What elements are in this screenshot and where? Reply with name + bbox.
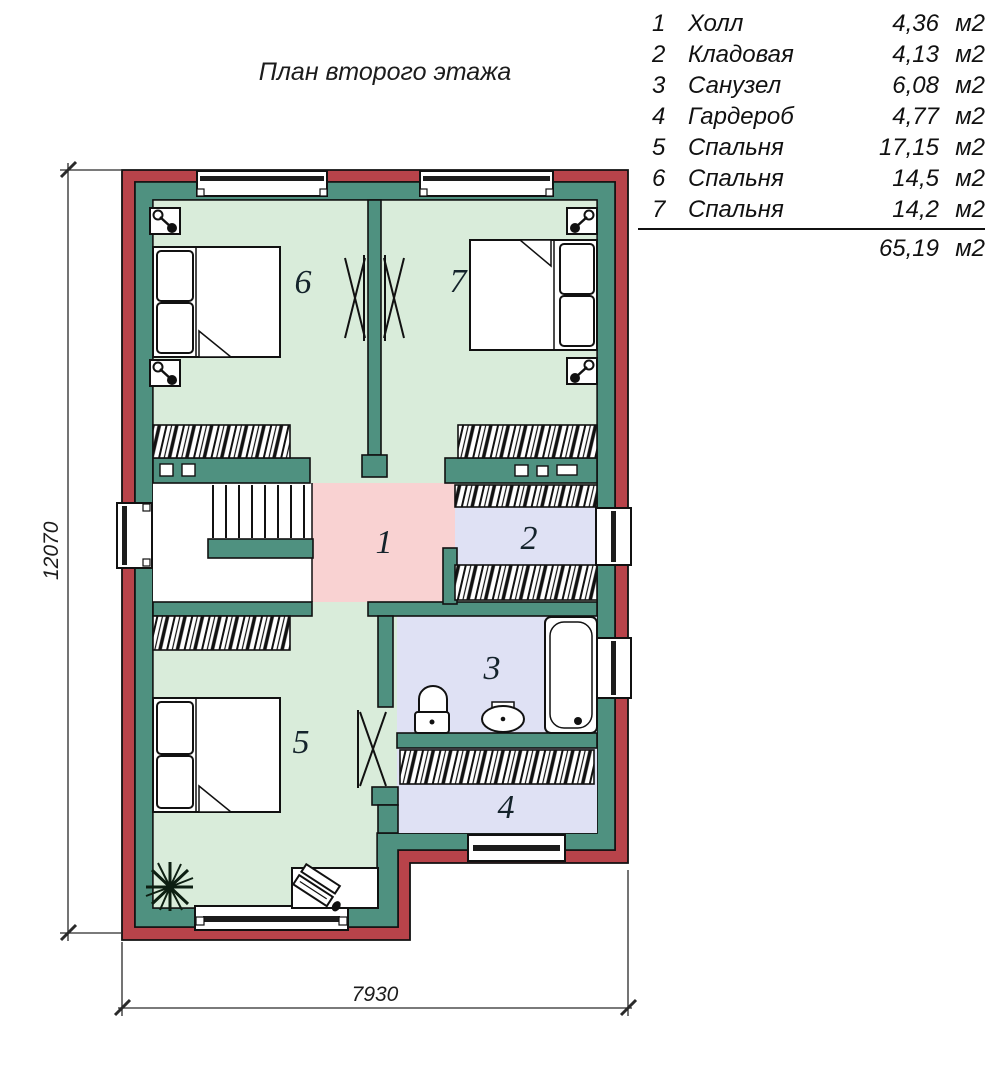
bed-bedroom-6 xyxy=(153,247,280,357)
bathroom-left-wall xyxy=(378,616,393,707)
legend-room-number: 1 xyxy=(652,10,688,38)
window-right-bathroom xyxy=(596,638,631,698)
window-right-storage xyxy=(596,508,631,565)
legend-room-number: 4 xyxy=(652,103,688,131)
plan-title: План второго этажа xyxy=(259,58,512,86)
legend-area-unit: м2 xyxy=(939,10,985,38)
desk-icon xyxy=(292,864,378,913)
stair-stringer xyxy=(208,539,313,558)
legend-room-name: Холл xyxy=(688,10,855,38)
legend-area-unit: м2 xyxy=(939,196,985,224)
legend-room-name: Гардероб xyxy=(688,103,855,131)
stairs-top-wall xyxy=(153,458,310,483)
sconce-icon xyxy=(567,358,597,384)
legend-room-area: 14,2 xyxy=(855,196,939,224)
window-top-left xyxy=(197,171,327,196)
legend-room-number: 2 xyxy=(652,41,688,69)
legend-row: 7 Спальня 14,2 м2 xyxy=(652,194,985,225)
legend-room-area: 17,15 xyxy=(855,134,939,162)
bathtub-icon xyxy=(545,617,597,733)
wall-end-block xyxy=(362,455,387,477)
legend-room-number: 6 xyxy=(652,165,688,193)
legend-total-row: 65,19 м2 xyxy=(652,232,985,265)
legend-room-name: Санузел xyxy=(688,72,855,100)
window-left xyxy=(117,503,152,568)
legend-row: 4 Гардероб 4,77 м2 xyxy=(652,101,985,132)
legend-room-number: 3 xyxy=(652,72,688,100)
floor-plan-page: План второго этажа xyxy=(0,0,997,1080)
legend-area-unit: м2 xyxy=(939,41,985,69)
legend-total-area: 65,19 xyxy=(855,235,939,263)
wardrobe-left-wall xyxy=(378,805,398,833)
legend-row: 1 Холл 4,36 м2 xyxy=(652,8,985,39)
legend-row: 3 Санузел 6,08 м2 xyxy=(652,70,985,101)
dimension-height-label: 12070 xyxy=(40,521,63,580)
legend-room-name: Спальня xyxy=(688,134,855,162)
area-legend: 1 Холл 4,36 м2 2 Кладовая 4,13 м2 3 Сану… xyxy=(652,8,985,265)
stairs-bottom-wall xyxy=(153,602,312,616)
dimension-left xyxy=(60,162,122,941)
bathroom-top-wall xyxy=(368,602,597,616)
room-label-6: 6 xyxy=(295,264,312,301)
legend-area-unit: м2 xyxy=(939,103,985,131)
legend-room-area: 14,5 xyxy=(855,165,939,193)
legend-room-name: Спальня xyxy=(688,165,855,193)
legend-room-area: 4,13 xyxy=(855,41,939,69)
legend-row: 5 Спальня 17,15 м2 xyxy=(652,132,985,163)
bed-bedroom-5 xyxy=(153,698,280,812)
legend-row: 2 Кладовая 4,13 м2 xyxy=(652,39,985,70)
storage-shelf-top xyxy=(455,485,597,507)
legend-room-area: 4,36 xyxy=(855,10,939,38)
legend-area-unit: м2 xyxy=(939,72,985,100)
wall-between-bedrooms xyxy=(368,200,381,455)
room-label-2: 2 xyxy=(521,520,538,557)
wardrobe-room-4-shelf xyxy=(400,750,594,784)
room-label-1: 1 xyxy=(376,524,393,561)
storage-shelf-bottom xyxy=(455,565,597,600)
legend-area-unit: м2 xyxy=(939,165,985,193)
legend-total-divider xyxy=(638,228,985,230)
wardrobe-bedroom-5 xyxy=(153,616,290,650)
legend-room-name: Спальня xyxy=(688,196,855,224)
legend-room-area: 6,08 xyxy=(855,72,939,100)
sconce-icon xyxy=(150,360,180,386)
legend-room-name: Кладовая xyxy=(688,41,855,69)
room-label-3: 3 xyxy=(483,650,501,687)
legend-row: 6 Спальня 14,5 м2 xyxy=(652,163,985,194)
window-bottom-bedroom-5 xyxy=(195,906,348,930)
sconce-icon xyxy=(567,208,597,234)
wardrobe-bedroom-7 xyxy=(458,425,597,458)
legend-room-number: 5 xyxy=(652,134,688,162)
legend-room-number: 7 xyxy=(652,196,688,224)
room-label-4: 4 xyxy=(498,789,515,826)
wardrobe-bedroom-6 xyxy=(153,425,290,458)
dimension-width-label: 7930 xyxy=(352,983,399,1006)
sconce-icon xyxy=(150,208,180,234)
legend-room-area: 4,77 xyxy=(855,103,939,131)
room-label-5: 5 xyxy=(293,724,310,761)
bed-bedroom-7 xyxy=(470,240,597,350)
bathroom-bottom-wall xyxy=(397,733,597,748)
window-bottom-wardrobe xyxy=(468,835,565,861)
toilet-icon xyxy=(415,686,449,733)
window-top-right xyxy=(420,171,553,196)
door-jamb-block xyxy=(372,787,398,805)
legend-total-unit: м2 xyxy=(939,235,985,263)
legend-area-unit: м2 xyxy=(939,134,985,162)
room-label-7: 7 xyxy=(450,263,469,300)
